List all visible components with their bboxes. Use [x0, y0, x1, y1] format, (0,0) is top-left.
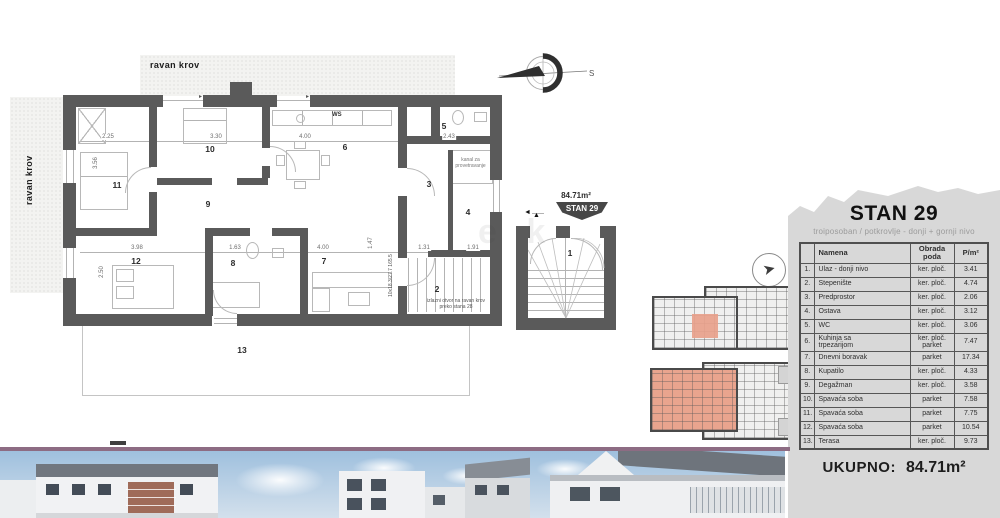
- flat-roof-area-top: ravan krov: [140, 55, 455, 96]
- room-area: 3.06: [954, 319, 988, 333]
- window: [371, 479, 386, 491]
- room-name: Spavaća soba: [814, 407, 910, 421]
- room-number: 3: [427, 179, 432, 189]
- floor-finish: ker. ploč.: [910, 379, 954, 393]
- wall-segment: [300, 236, 308, 316]
- thin-line: [277, 100, 310, 101]
- spec-row: 13.Terasaker. ploč.9.73: [800, 435, 988, 449]
- window: [72, 484, 85, 495]
- room-area: 3.41: [954, 263, 988, 277]
- row-index: 11.: [800, 407, 814, 421]
- spec-row: 2.Stepeništeker. ploč.4.74: [800, 277, 988, 291]
- door-arc: [407, 258, 435, 286]
- wall-segment: [262, 166, 270, 178]
- building-photo-2: [337, 451, 530, 518]
- floor-finish: parket: [910, 421, 954, 435]
- thin-line: [73, 150, 74, 183]
- thin-line: [66, 248, 67, 278]
- room-name: Predprostor: [814, 291, 910, 305]
- room-area: 3.12: [954, 305, 988, 319]
- room-number: 13: [237, 345, 246, 355]
- cloud: [235, 463, 325, 497]
- room-area: 2.06: [954, 291, 988, 305]
- floor-finish: ker. ploč.: [910, 305, 954, 319]
- spec-row: 4.Ostavaker. ploč.3.12: [800, 305, 988, 319]
- furniture-outline: [116, 286, 134, 299]
- wall-segment: [398, 250, 405, 257]
- row-index: 5.: [800, 319, 814, 333]
- room-name: Terasa: [814, 435, 910, 449]
- wall-segment: [149, 107, 157, 167]
- vent-shaft-note: kanal za provetravanje: [449, 158, 492, 169]
- wall-segment: [556, 226, 570, 238]
- room-area: 4.74: [954, 277, 988, 291]
- panel-title: STAN 29: [788, 202, 1000, 226]
- wall-segment: [237, 314, 502, 326]
- row-index: 3.: [800, 291, 814, 305]
- room-area: 9.73: [954, 435, 988, 449]
- roof-drain-arrow-icon: ▸: [306, 94, 309, 100]
- wall-segment: [203, 95, 277, 107]
- highlighted-unit: [692, 314, 718, 338]
- spec-row: 1.Ulaz - donji nivoker. ploč.3.41: [800, 263, 988, 277]
- col-header-floor: Obrada poda: [910, 243, 954, 263]
- dimension-label: 4.00: [298, 134, 312, 140]
- wall-segment: [310, 95, 502, 107]
- wall-segment: [262, 107, 270, 148]
- room-name: Dnevni boravak: [814, 351, 910, 365]
- row-index: 13.: [800, 435, 814, 449]
- building-photo-1: [0, 451, 337, 518]
- wall-segment: [205, 236, 213, 316]
- window: [433, 495, 445, 505]
- room-area: 4.33: [954, 365, 988, 379]
- furniture-outline: [246, 242, 259, 259]
- roof-label-top: ravan krov: [150, 60, 200, 70]
- key-plan-lower: [644, 356, 802, 444]
- window: [347, 498, 362, 510]
- row-index: 6.: [800, 333, 814, 351]
- building-roof: [36, 464, 218, 477]
- row-index: 12.: [800, 421, 814, 435]
- wall-segment: [398, 196, 407, 258]
- unit-number-badge: STAN 29: [556, 202, 608, 220]
- floor-finish: ker. ploč.: [910, 291, 954, 305]
- room-number: 7: [322, 256, 327, 266]
- furniture-outline: [296, 114, 305, 123]
- spec-row: 11.Spavaća sobaparket7.75: [800, 407, 988, 421]
- thin-line: [163, 100, 203, 101]
- furniture-outline: [312, 288, 330, 312]
- dimension-label: 3.56: [93, 156, 99, 170]
- wall-segment: [149, 192, 157, 232]
- room-area: 7.47: [954, 333, 988, 351]
- dimension-label: 4.00: [316, 245, 330, 251]
- room-area: 17.34: [954, 351, 988, 365]
- room-number: 10: [205, 144, 214, 154]
- col-header-name: Namena: [814, 243, 910, 263]
- facade-band: [550, 475, 785, 481]
- room-name: Spavaća soba: [814, 393, 910, 407]
- floor-finish: parket: [910, 393, 954, 407]
- unit-spec-panel: STAN 29 troiposoban / potkrovlje - donji…: [788, 186, 1000, 518]
- row-index: 8.: [800, 365, 814, 379]
- compass-letter: S: [589, 69, 594, 78]
- highlighted-unit: [650, 368, 738, 432]
- wall-segment: [398, 107, 407, 168]
- dimension-label: 2.43: [442, 134, 456, 140]
- stair-spec-label: 10x18.3/27.7 165.5: [388, 254, 394, 297]
- furniture-outline: [321, 155, 330, 166]
- row-index: 10.: [800, 393, 814, 407]
- furniture-outline: [294, 141, 306, 149]
- window: [600, 487, 620, 501]
- spec-row: 5.WCker. ploč.3.06: [800, 319, 988, 333]
- building-photo-3: [530, 451, 785, 518]
- furniture-outline: [116, 269, 134, 282]
- floor-finish: parket: [910, 407, 954, 421]
- dimension-label: 2.25: [101, 134, 115, 140]
- terrace-outline: [82, 326, 470, 396]
- wall-segment: [157, 178, 212, 185]
- room-name: Degažman: [814, 379, 910, 393]
- row-index: 4.: [800, 305, 814, 319]
- door-arc: [125, 167, 151, 193]
- watermark: e k: [478, 213, 555, 252]
- furniture-outline: [474, 112, 487, 122]
- spec-row: 7.Dnevni boravakparket17.34: [800, 351, 988, 365]
- wall-segment: [205, 228, 250, 236]
- building-gable: [578, 451, 634, 475]
- compass-icon: S: [495, 50, 595, 96]
- roof-exit-note: izlazni otvor na ravan krov preko stana …: [410, 299, 502, 310]
- room-number: 6: [343, 142, 348, 152]
- spec-row: 6.Kuhinja sa trpezarijomker. ploč. parke…: [800, 333, 988, 351]
- railing: [690, 487, 785, 513]
- spec-row: 9.Degažmanker. ploč.3.58: [800, 379, 988, 393]
- floor-finish: ker. ploč.: [910, 435, 954, 449]
- room-name: Spavaća soba: [814, 421, 910, 435]
- railing: [126, 489, 176, 490]
- railing: [126, 505, 176, 506]
- furniture-outline: [294, 181, 306, 189]
- scan-artifact: [110, 441, 126, 445]
- room-area: 7.58: [954, 393, 988, 407]
- entry-marker-icon: ▲: [533, 212, 540, 219]
- room-name: Kupatilo: [814, 365, 910, 379]
- flat-roof-area-left: ravan krov: [10, 97, 63, 293]
- total-label: UKUPNO:: [822, 459, 896, 476]
- window: [46, 484, 59, 495]
- dimension-label: 3.98: [130, 245, 144, 251]
- row-index: 1.: [800, 263, 814, 277]
- railing: [126, 497, 176, 498]
- spec-row: 12.Spavaća sobaparket10.54: [800, 421, 988, 435]
- room-area: 7.75: [954, 407, 988, 421]
- total-row: UKUPNO:84.71m²: [788, 459, 1000, 477]
- wall-segment: [237, 178, 268, 185]
- window: [371, 498, 386, 510]
- floor-finish: ker. ploč.: [910, 277, 954, 291]
- spec-row: 3.Predprostorker. ploč.2.06: [800, 291, 988, 305]
- building-base: [36, 513, 218, 518]
- room-area: 10.54: [954, 421, 988, 435]
- wall-segment: [230, 82, 252, 96]
- thin-line: [499, 180, 500, 212]
- row-index: 7.: [800, 351, 814, 365]
- wall-segment: [272, 228, 308, 236]
- unit-area-label: 84.71m²: [545, 191, 607, 200]
- key-plan-upper: [648, 282, 800, 354]
- panel-subtitle: troiposoban / potkrovlje - donji + gornj…: [788, 227, 1000, 236]
- room-number: 12: [131, 256, 140, 266]
- window: [570, 487, 590, 501]
- floor-finish: parket: [910, 351, 954, 365]
- col-header-index: [800, 243, 814, 263]
- room-number: 2: [435, 284, 440, 294]
- wall-segment: [398, 286, 407, 316]
- room-number: 8: [231, 258, 236, 268]
- room-name: Kuhinja sa trpezarijom: [814, 333, 910, 351]
- furniture-outline: [312, 272, 392, 288]
- door-arc: [213, 290, 237, 314]
- floor-finish: ker. ploč.: [910, 319, 954, 333]
- ws-label: WS: [332, 112, 342, 118]
- row-index: 9.: [800, 379, 814, 393]
- room-number: 5: [442, 121, 447, 131]
- window: [475, 485, 487, 495]
- wall-segment: [63, 183, 76, 248]
- roof-label-left: ravan krov: [24, 155, 34, 205]
- building-facade: [465, 478, 530, 518]
- window: [98, 484, 111, 495]
- room-number: 4: [466, 207, 471, 217]
- thin-line: [214, 318, 237, 319]
- west-arrow-icon: ◄: [524, 209, 531, 217]
- furniture-outline: [272, 248, 284, 258]
- floor-finish: ker. ploč.: [910, 263, 954, 277]
- window: [347, 479, 362, 491]
- wall-segment: [76, 228, 157, 236]
- thin-line: [73, 248, 74, 278]
- row-index: 2.: [800, 277, 814, 291]
- spec-header-row: Namena Obrada poda P/m²: [800, 243, 988, 263]
- dimension-label: 2.50: [99, 265, 105, 279]
- dimension-label: 1.47: [368, 236, 374, 250]
- total-value: 84.71m²: [906, 459, 966, 476]
- room-name: Ulaz - donji nivo: [814, 263, 910, 277]
- dimension-label: 3.30: [209, 134, 223, 140]
- dimension-label: 1.63: [228, 245, 242, 251]
- room-number: 11: [113, 180, 122, 190]
- floor-finish: ker. ploč. parket: [910, 333, 954, 351]
- window: [497, 485, 509, 495]
- room-number: 9: [206, 199, 211, 209]
- thin-line: [66, 150, 67, 183]
- window: [180, 484, 193, 495]
- wall-segment: [63, 107, 76, 150]
- document-canvas: ravan krov ravan krov 123456789101112132…: [0, 0, 1000, 518]
- floor-finish: ker. ploč.: [910, 365, 954, 379]
- building-roof: [618, 451, 785, 477]
- room-name: Ostava: [814, 305, 910, 319]
- spec-row: 8.Kupatiloker. ploč.4.33: [800, 365, 988, 379]
- wall-segment: [63, 95, 163, 107]
- room-name: Stepenište: [814, 277, 910, 291]
- thin-line: [493, 180, 494, 212]
- furniture-outline: [348, 292, 370, 306]
- wall-segment: [63, 314, 212, 326]
- dimension-label: 1.31: [417, 245, 431, 251]
- col-header-area: P/m²: [954, 243, 988, 263]
- thin-line: [214, 323, 237, 324]
- room-area: 3.58: [954, 379, 988, 393]
- furniture-outline: [452, 110, 464, 125]
- spec-table: Namena Obrada poda P/m² 1.Ulaz - donji n…: [799, 242, 989, 450]
- room-name: WC: [814, 319, 910, 333]
- spec-row: 10.Spavaća sobaparket7.58: [800, 393, 988, 407]
- roof-drain-arrow-icon: ▸: [199, 94, 202, 100]
